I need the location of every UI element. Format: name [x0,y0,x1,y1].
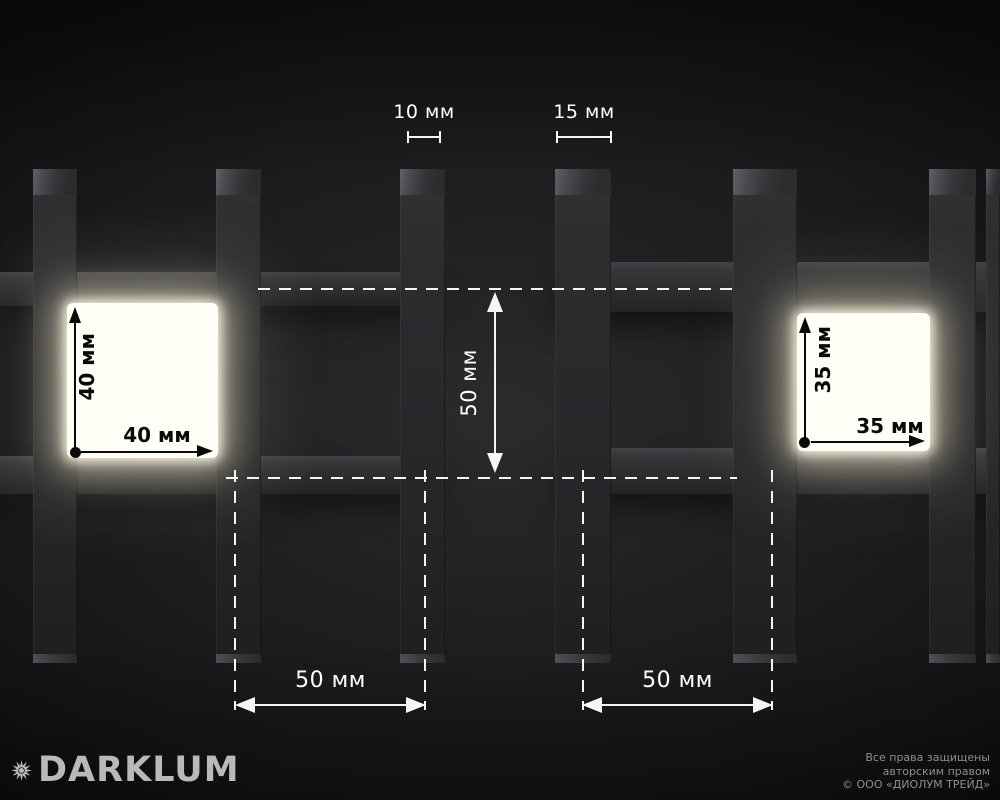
dimension-line [407,136,441,138]
guide-line-top [258,288,737,290]
sunburst-icon [10,759,33,782]
dimension-line [556,136,612,138]
copyright-line: Все права защищены [842,751,990,765]
guide-line-right-slat2 [771,470,773,710]
dimension-pitch-left: 50 мм [235,697,426,713]
arrow-right-icon [197,445,213,457]
cell-width-label: 35 мм [856,414,924,438]
tick [556,131,558,143]
grille-dimension-diagram: 40 мм 40 мм 35 мм 35 мм 10 мм 15 мм 50 м… [0,0,1000,800]
guide-line-left-slat2 [234,470,236,710]
brand-logo: DARKLUM [10,753,240,788]
dimension-pitch-right: 50 мм [582,697,773,713]
copyright-block: Все права защищены авторским правом © ОО… [842,751,990,792]
origin-dot [70,447,81,458]
copyright-line: © ООО «ДИОЛУМ ТРЕЙД» [842,778,990,792]
left-slat-3 [400,169,445,663]
width-arrow-line [811,441,911,443]
cell-height-label: 40 мм [75,333,99,401]
right-slat-2 [733,169,797,663]
copyright-line: авторским правом [842,765,990,779]
brand-logo-text: DARKLUM [38,753,240,788]
dimension-label: 10 мм [393,101,454,123]
arrow-up-icon [69,307,81,323]
dimension-label: 50 мм [295,668,366,693]
guide-line-left-slat3 [424,470,426,710]
cell-height-label: 35 мм [811,326,835,394]
arrow-right-icon [753,697,773,713]
dimension-line [598,704,757,706]
right-slat-3 [929,169,976,663]
width-arrow-line [81,451,199,453]
cell-width-label: 40 мм [123,423,191,447]
guide-line-right-slat1 [582,470,584,710]
dimension-slat-width-left: 10 мм [407,111,441,143]
dimension-label: 50 мм [457,349,481,417]
dimension-slat-width-right: 15 мм [556,111,612,143]
tick [407,131,409,143]
height-arrow-line [804,327,806,439]
guide-line-bottom [226,477,737,479]
dimension-line [251,704,410,706]
dimension-cell-height: 50 мм [487,292,503,473]
arrow-down-icon [487,453,503,473]
tick [610,131,612,143]
left-light-cell: 40 мм 40 мм [67,303,218,458]
dimension-line [494,308,496,457]
arrow-up-icon [799,317,811,333]
right-light-cell: 35 мм 35 мм [797,313,930,451]
arrow-right-icon [406,697,426,713]
dimension-label: 50 мм [642,668,713,693]
left-slat-2 [216,169,261,663]
dimension-label: 15 мм [553,101,614,123]
tick [439,131,441,143]
right-slat-4-partial [986,169,1000,663]
